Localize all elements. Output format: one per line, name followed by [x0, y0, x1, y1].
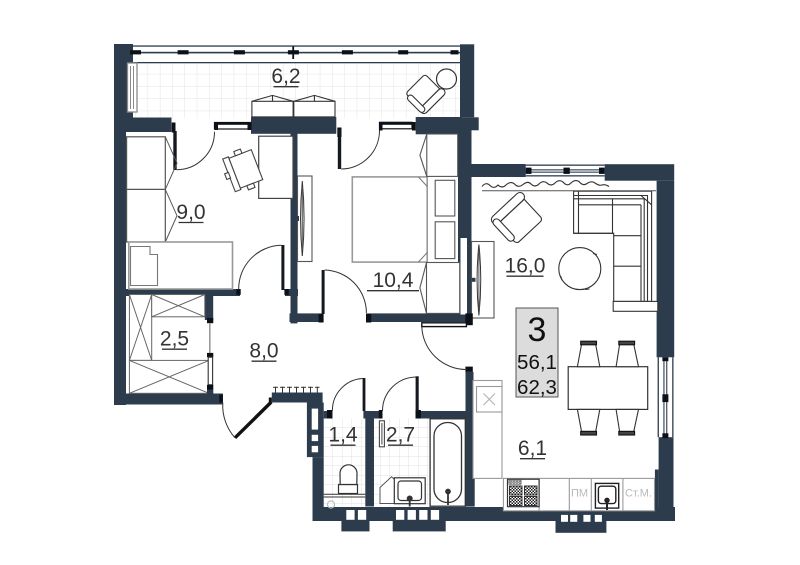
svg-text:1,4: 1,4 — [328, 424, 358, 447]
svg-text:2,7: 2,7 — [386, 424, 415, 447]
svg-text:16,0: 16,0 — [505, 255, 546, 278]
svg-text:56,1: 56,1 — [517, 351, 557, 374]
svg-text:2,5: 2,5 — [160, 328, 189, 351]
svg-text:ПМ: ПМ — [571, 488, 588, 500]
svg-text:62,3: 62,3 — [517, 376, 557, 399]
svg-text:8,0: 8,0 — [249, 340, 278, 363]
svg-text:10,4: 10,4 — [373, 269, 414, 292]
svg-text:6,2: 6,2 — [271, 65, 300, 88]
svg-text:9,0: 9,0 — [176, 201, 205, 224]
svg-text:6,1: 6,1 — [518, 437, 547, 460]
svg-text:Ст.М.: Ст.М. — [625, 488, 652, 500]
svg-text:3: 3 — [528, 311, 547, 349]
